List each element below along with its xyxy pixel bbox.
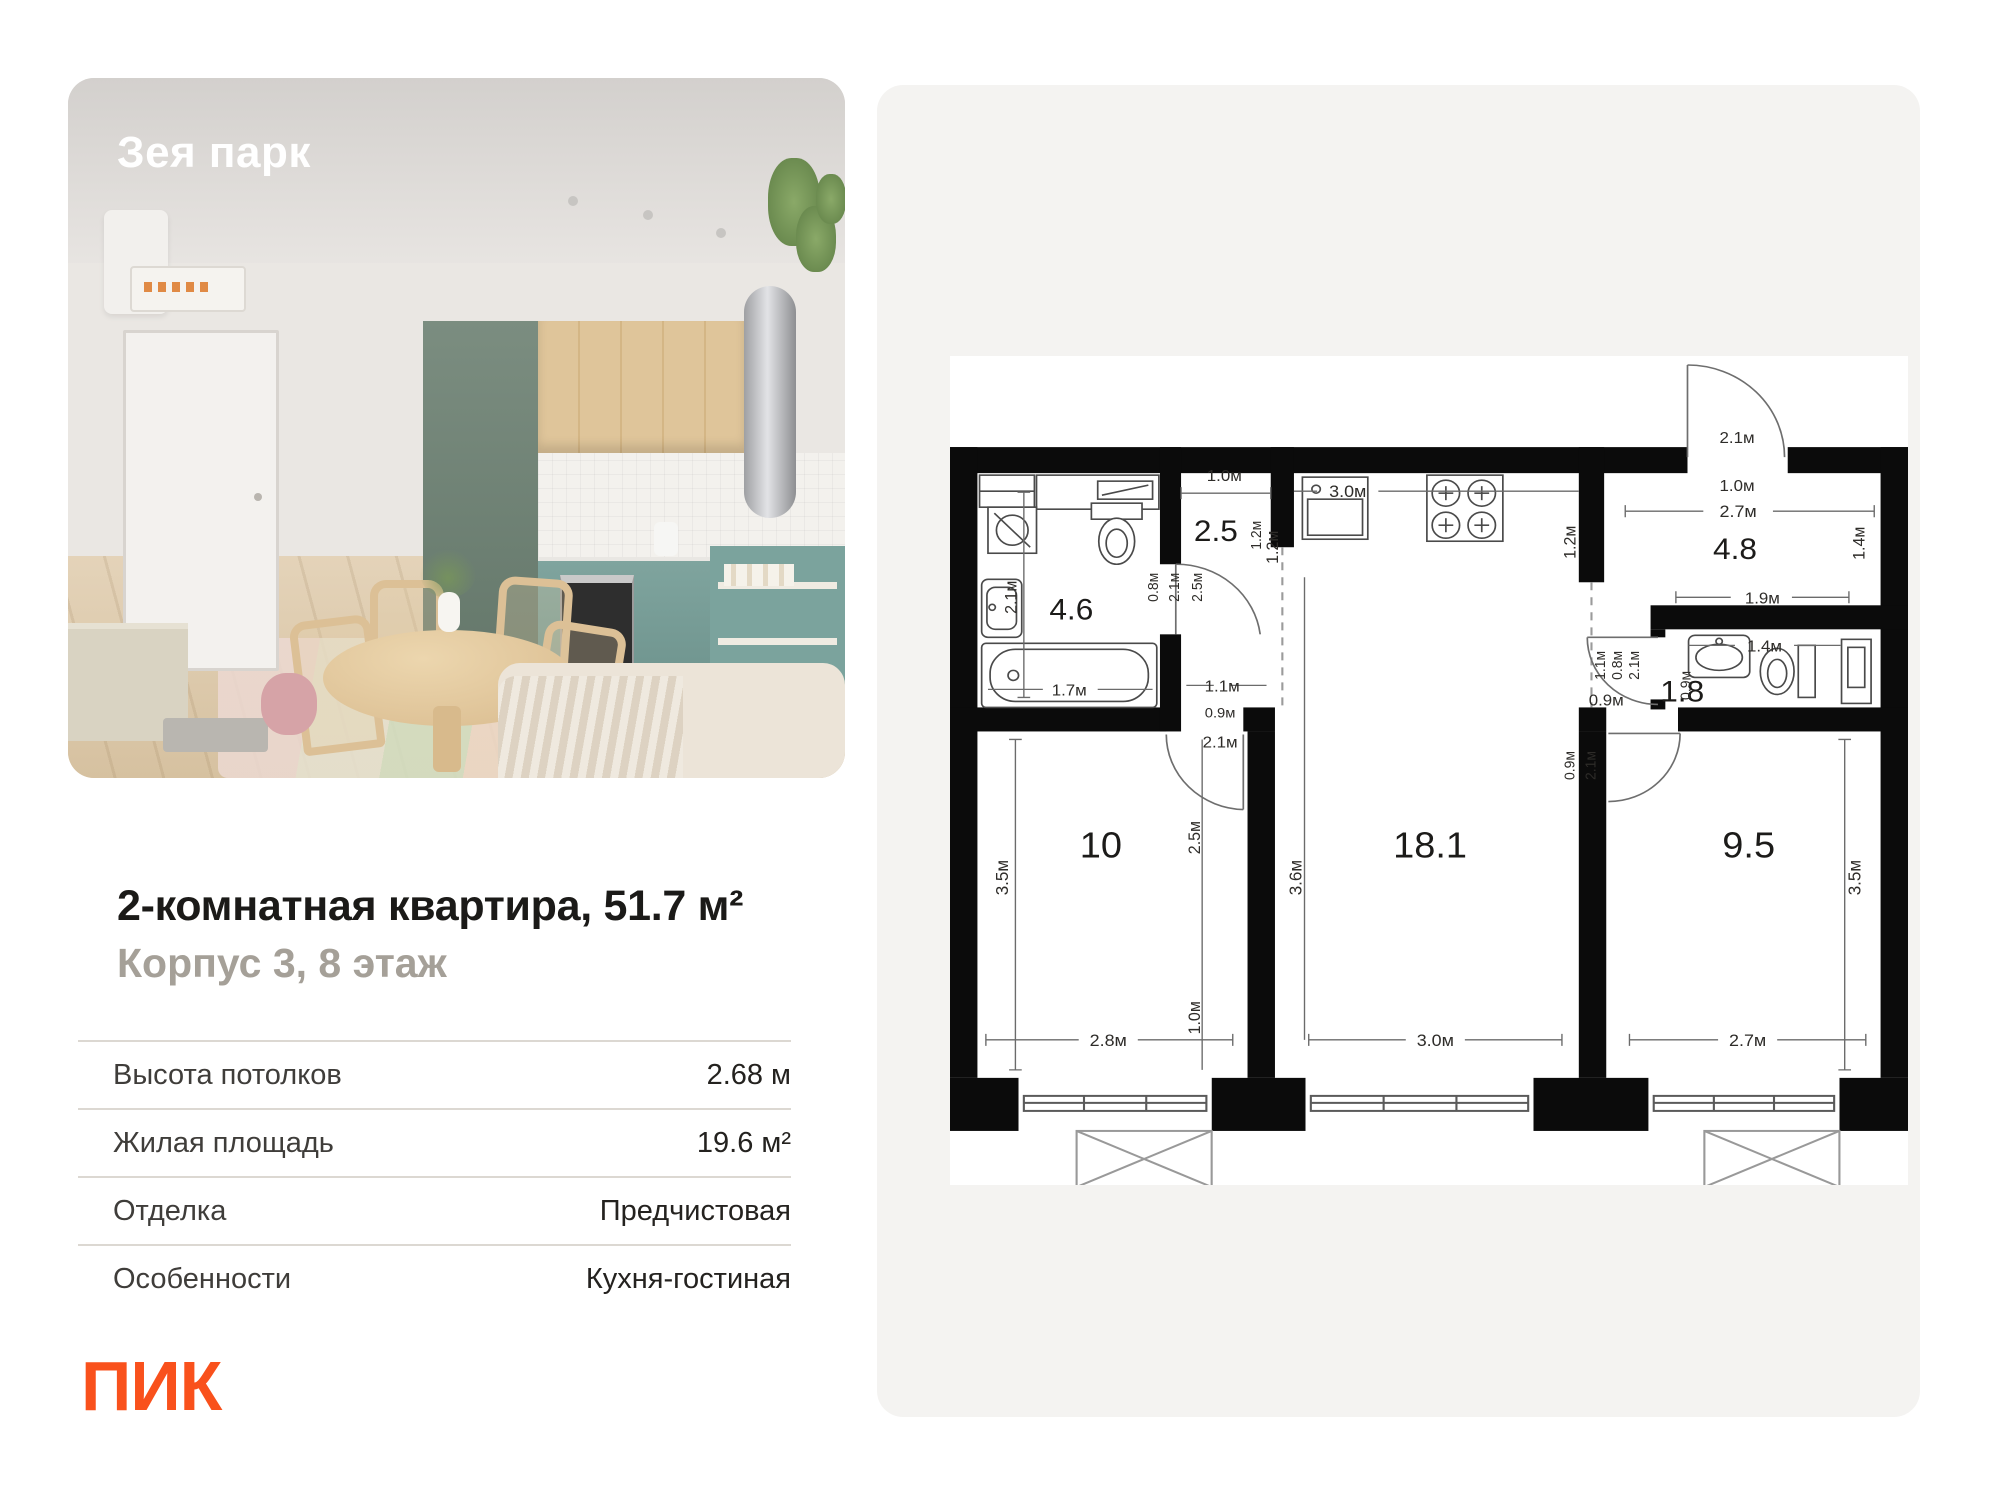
spec-value: 2.68 м xyxy=(707,1059,791,1092)
spec-table: Высота потолков 2.68 м Жилая площадь 19.… xyxy=(78,1040,791,1312)
dim-label: 2.1м xyxy=(1720,429,1755,447)
dim-label: 3.5м xyxy=(1844,860,1865,895)
spec-label: Высота потолков xyxy=(78,1059,342,1092)
window xyxy=(1306,1078,1534,1131)
spec-value: 19.6 м² xyxy=(697,1127,791,1160)
entry-door xyxy=(123,330,279,671)
spec-value: Кухня-гостиная xyxy=(586,1263,791,1296)
dim-label: 0.9м xyxy=(1589,692,1624,710)
spec-label: Особенности xyxy=(78,1263,291,1296)
dim-label: 2.1м xyxy=(1002,581,1020,614)
ceiling-spotlight xyxy=(716,228,726,238)
bathroom-door xyxy=(1176,564,1260,634)
wood-upper-cabinets xyxy=(538,321,745,453)
spec-label: Жилая площадь xyxy=(78,1127,334,1160)
listing-subtitle: Корпус 3, 8 этаж xyxy=(117,940,447,987)
dim-label: 0.9м xyxy=(1562,751,1578,780)
dim-label: 1.1м xyxy=(1593,651,1609,680)
dim-label: 2.1м xyxy=(1583,751,1599,780)
hanging-plant xyxy=(816,174,845,224)
photo-ceiling xyxy=(68,78,845,278)
dim-label: 2.1м xyxy=(1627,651,1643,680)
window xyxy=(1019,1078,1212,1131)
spec-label: Отделка xyxy=(78,1195,226,1228)
dim-label: 1.0м xyxy=(1186,1001,1204,1034)
dim-label: 1.4м xyxy=(1747,638,1782,656)
door-intercom-panel xyxy=(130,266,246,312)
dim-label: 3.5м xyxy=(992,860,1013,895)
balcony xyxy=(1077,1131,1840,1185)
dim-label: 3.0м xyxy=(1417,1030,1454,1049)
books xyxy=(724,564,794,586)
dim-label: 0.8м xyxy=(1610,651,1626,680)
ceiling-spotlight xyxy=(643,210,653,220)
listing-title: 2-комнатная квартира, 51.7 м² xyxy=(117,882,743,931)
floorplan-svg: 4.6 2.5 4.8 1.8 10 18.1 9.5 1.0м 1.7м 1.… xyxy=(950,356,1908,1185)
dim-label: 2.1м xyxy=(1167,573,1183,602)
dim-label: 0.9м xyxy=(1678,671,1694,700)
spec-value: Предчистовая xyxy=(600,1195,791,1228)
dim-label: 1.0м xyxy=(1207,468,1242,486)
room-area-bedroom2: 9.5 xyxy=(1722,825,1775,866)
vase xyxy=(438,592,460,632)
dim-label: 2.5м xyxy=(1190,573,1206,602)
room-area-entry: 4.8 xyxy=(1713,532,1757,566)
room-area-hall: 2.5 xyxy=(1194,514,1238,548)
pouf xyxy=(261,673,317,735)
dim-label: 1.1м xyxy=(1205,678,1240,696)
spec-row-finishing: Отделка Предчистовая xyxy=(78,1176,791,1244)
dim-label: 2.7м xyxy=(1720,502,1757,521)
window xyxy=(1648,1078,1839,1131)
plan-walls xyxy=(950,447,1908,1131)
dim-label: 2.8м xyxy=(1090,1030,1127,1049)
dim-label: 0.8м xyxy=(1146,573,1162,602)
dim-label: 1.2м xyxy=(1561,526,1579,559)
room-area-bath: 4.6 xyxy=(1049,592,1093,626)
spec-row-living-area: Жилая площадь 19.6 м² xyxy=(78,1108,791,1176)
project-name-overlay: Зея парк xyxy=(117,128,311,178)
room-area-bedroom1: 10 xyxy=(1080,825,1122,866)
dim-label: 1.0м xyxy=(1720,478,1755,496)
kitchen-backsplash xyxy=(538,453,845,559)
floorplan-canvas: 4.6 2.5 4.8 1.8 10 18.1 9.5 1.0м 1.7м 1.… xyxy=(950,356,1908,1185)
dim-label: 2.7м xyxy=(1729,1030,1766,1049)
kettle xyxy=(654,522,678,556)
dim-label: 3.0м xyxy=(1329,482,1366,501)
pik-logo: ПИК xyxy=(81,1346,221,1426)
dim-label: 1.4м xyxy=(1850,527,1868,560)
dimension-lines xyxy=(986,487,1874,1070)
dim-label: 0.9м xyxy=(1205,706,1236,722)
spec-row-ceiling-height: Высота потолков 2.68 м xyxy=(78,1040,791,1108)
room-area-living: 18.1 xyxy=(1393,825,1467,866)
dim-label: 1.9м xyxy=(1745,590,1780,608)
kitchen-hood xyxy=(744,286,796,518)
ceiling-spotlight xyxy=(568,196,578,206)
apartment-photo-card: Зея парк xyxy=(68,78,845,778)
table-leg xyxy=(433,706,461,772)
bedroom2-door xyxy=(1608,733,1680,801)
dim-label: 2.5м xyxy=(1186,821,1204,854)
plant-sprig xyxy=(420,548,476,598)
spec-row-features: Особенности Кухня-гостиная xyxy=(78,1244,791,1312)
doormat xyxy=(163,718,268,752)
dim-label: 2.1м xyxy=(1203,734,1238,752)
open-boundary xyxy=(1282,547,1591,707)
dim-label: 1.2м xyxy=(1264,531,1282,564)
dim-label: 3.6м xyxy=(1285,860,1306,895)
striped-throw xyxy=(498,676,683,778)
dim-label: 1.7м xyxy=(1052,682,1087,700)
